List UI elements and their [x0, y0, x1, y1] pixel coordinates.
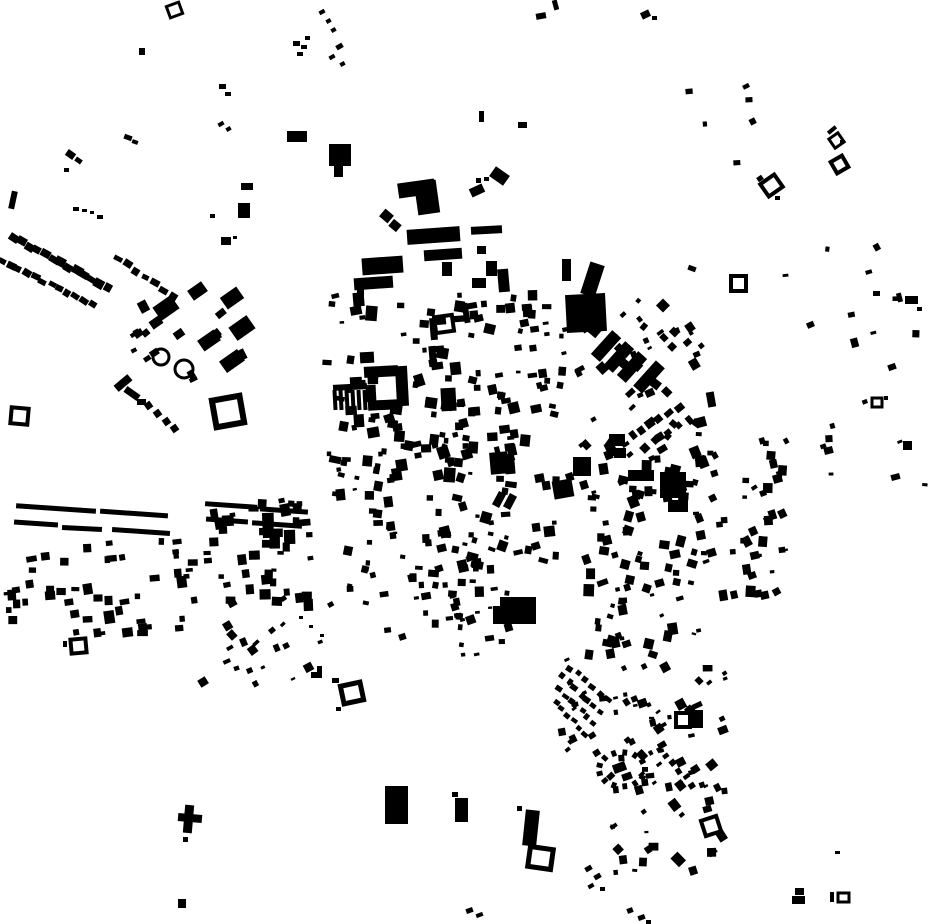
buildings-layer — [0, 0, 930, 924]
figure-ground-map — [0, 0, 930, 924]
